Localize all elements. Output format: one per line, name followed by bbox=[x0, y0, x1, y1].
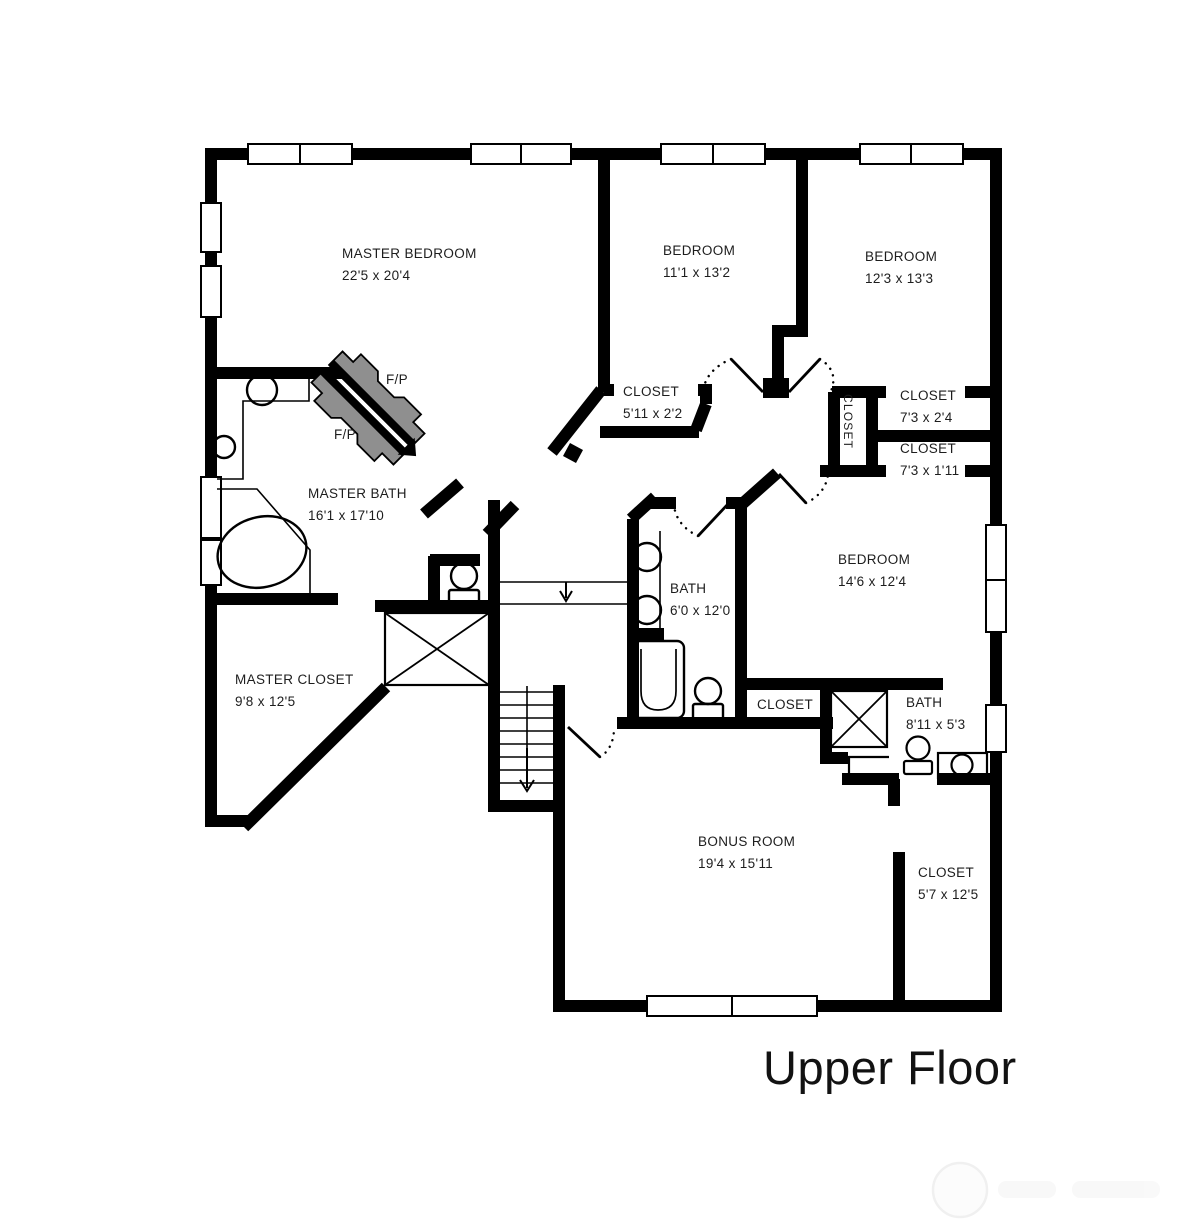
room-label-bedroom-right: BEDROOM14'6 x 12'4 bbox=[838, 549, 910, 593]
room-label-bedroom-small: BEDROOM11'1 x 13'2 bbox=[663, 240, 735, 284]
room-label-closet-right-upper: CLOSET7'3 x 2'4 bbox=[900, 385, 956, 429]
fireplace-label-lower: F/P bbox=[334, 427, 356, 442]
open-to-below-railing bbox=[500, 582, 627, 604]
floor-plan: MASTER BEDROOM22'5 x 20'4 BEDROOM11'1 x … bbox=[0, 0, 1198, 1232]
room-label-hall-bath: BATH6'0 x 12'0 bbox=[670, 578, 730, 622]
room-label-closet-right-lower: CLOSET7'3 x 1'11 bbox=[900, 438, 959, 482]
window bbox=[201, 203, 221, 252]
room-label-master-bath: MASTER BATH16'1 x 17'10 bbox=[308, 483, 407, 527]
watermark bbox=[933, 1163, 1160, 1217]
window bbox=[986, 705, 1006, 752]
corner-tub-icon bbox=[209, 507, 314, 598]
window bbox=[860, 144, 963, 164]
shower-icon bbox=[385, 613, 489, 685]
window bbox=[201, 266, 221, 317]
door-stop bbox=[563, 443, 583, 463]
room-label-closet-bedroom-small: CLOSET5'11 x 2'2 bbox=[623, 381, 682, 425]
staircase bbox=[500, 686, 553, 791]
room-label-master-bedroom: MASTER BEDROOM22'5 x 20'4 bbox=[342, 243, 477, 287]
window bbox=[986, 525, 1006, 580]
window bbox=[661, 144, 765, 164]
toilet-icon bbox=[693, 678, 723, 719]
window bbox=[248, 144, 352, 164]
plan-title: Upper Floor bbox=[763, 1040, 1017, 1095]
window bbox=[201, 477, 221, 538]
fireplace-label-upper: F/P bbox=[386, 372, 408, 387]
window bbox=[471, 144, 571, 164]
hall-bath-fixtures bbox=[627, 531, 723, 719]
tub-platform bbox=[217, 489, 310, 593]
room-label-closet-bonus: CLOSET5'7 x 12'5 bbox=[918, 862, 978, 906]
floor-plan-drawing bbox=[0, 0, 1198, 1232]
room-label-small-bath: BATH8'11 x 5'3 bbox=[906, 692, 965, 736]
room-label-closet-hall: CLOSET bbox=[757, 694, 813, 716]
room-label-closet-shaft: CLOSET bbox=[841, 394, 855, 449]
room-label-bedroom-mid: BEDROOM12'3 x 13'3 bbox=[865, 246, 937, 290]
toilet-icon bbox=[904, 737, 932, 775]
window bbox=[647, 996, 817, 1016]
room-label-bonus-room: BONUS ROOM19'4 x 15'11 bbox=[698, 831, 795, 875]
bathtub-icon bbox=[633, 641, 684, 718]
vanity-counter bbox=[217, 379, 309, 479]
shower-icon bbox=[831, 691, 887, 747]
room-label-master-closet: MASTER CLOSET9'8 x 12'5 bbox=[235, 669, 354, 713]
hall-down-arrow bbox=[560, 582, 572, 601]
fireplace-icon bbox=[304, 344, 440, 480]
window bbox=[986, 580, 1006, 632]
toilet-icon bbox=[449, 563, 479, 606]
